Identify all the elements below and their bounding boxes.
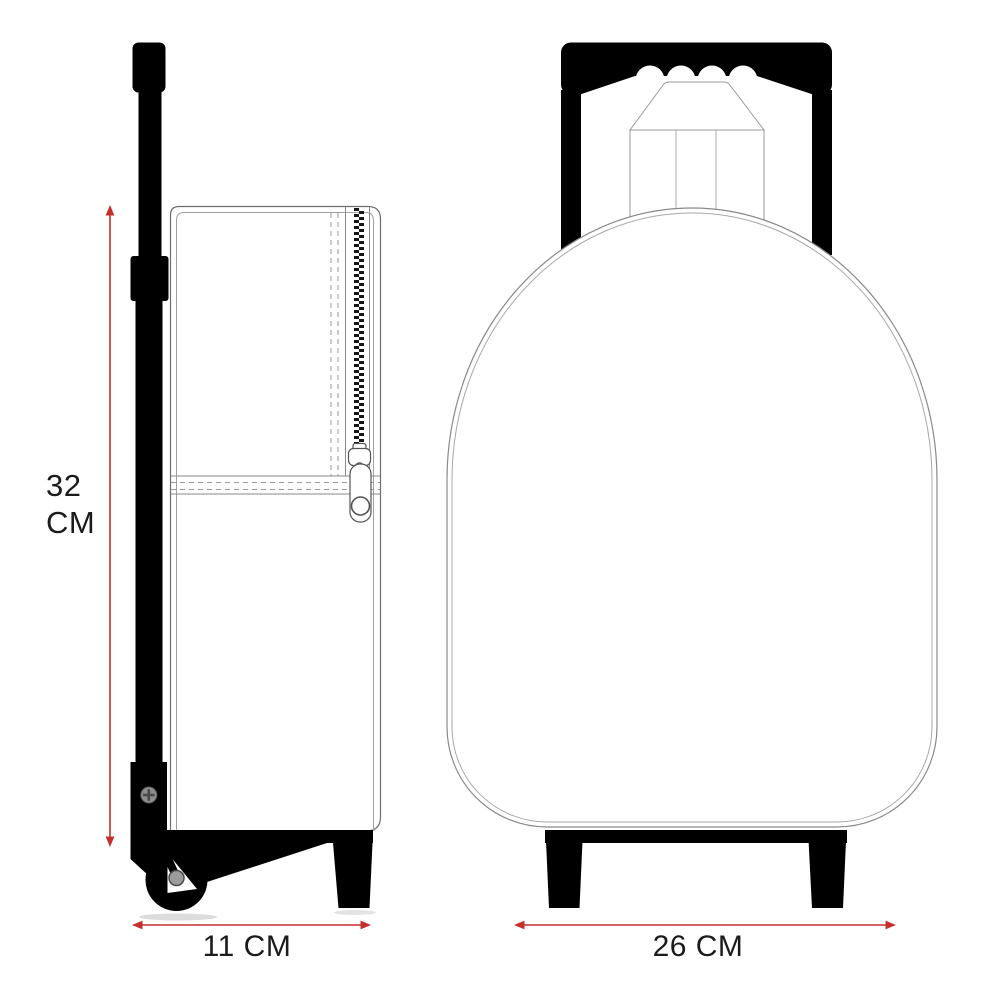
side-body-outline (171, 207, 381, 832)
trolley-right-bar (812, 90, 832, 255)
trolley-left-bar (561, 90, 581, 255)
product-dimension-diagram: 32 CM 11 CM 26 CM (0, 0, 1000, 1000)
front-body-outline (447, 208, 937, 827)
handle-collar (131, 256, 169, 301)
height-unit: CM (46, 504, 106, 541)
handle-housing (630, 82, 764, 222)
side-base-bar (166, 830, 373, 843)
handle-grip (133, 43, 166, 93)
wheel-hub (169, 871, 184, 886)
width-dimension-label: 26 CM (610, 929, 786, 965)
height-dimension-label: 32 CM (46, 467, 106, 541)
height-dimension-arrow (106, 205, 115, 847)
arrow-left-icon (132, 921, 143, 930)
arrow-right-icon (886, 921, 897, 930)
foot-shadow (334, 910, 376, 915)
arrow-down-icon (106, 837, 115, 848)
arrow-up-icon (106, 205, 115, 216)
front-base-bar (545, 830, 847, 843)
front-right-leg (808, 830, 847, 908)
trolley-backpack-drawing (0, 0, 1000, 1000)
zipper-slider (349, 444, 372, 523)
bracket-screw (141, 787, 157, 803)
height-value: 32 (46, 467, 106, 504)
front-view (447, 43, 937, 909)
rear-foot (333, 843, 373, 908)
arrow-right-icon (361, 921, 372, 930)
side-view (131, 43, 381, 921)
zipper-pull-ring (352, 497, 370, 515)
handle-upper-tube (139, 88, 162, 260)
arrow-left-icon (514, 921, 525, 930)
depth-dimension-label: 11 CM (160, 929, 334, 965)
wheel-shadow (139, 914, 217, 921)
front-left-leg (546, 830, 584, 908)
handle-lower-tube (136, 298, 163, 766)
